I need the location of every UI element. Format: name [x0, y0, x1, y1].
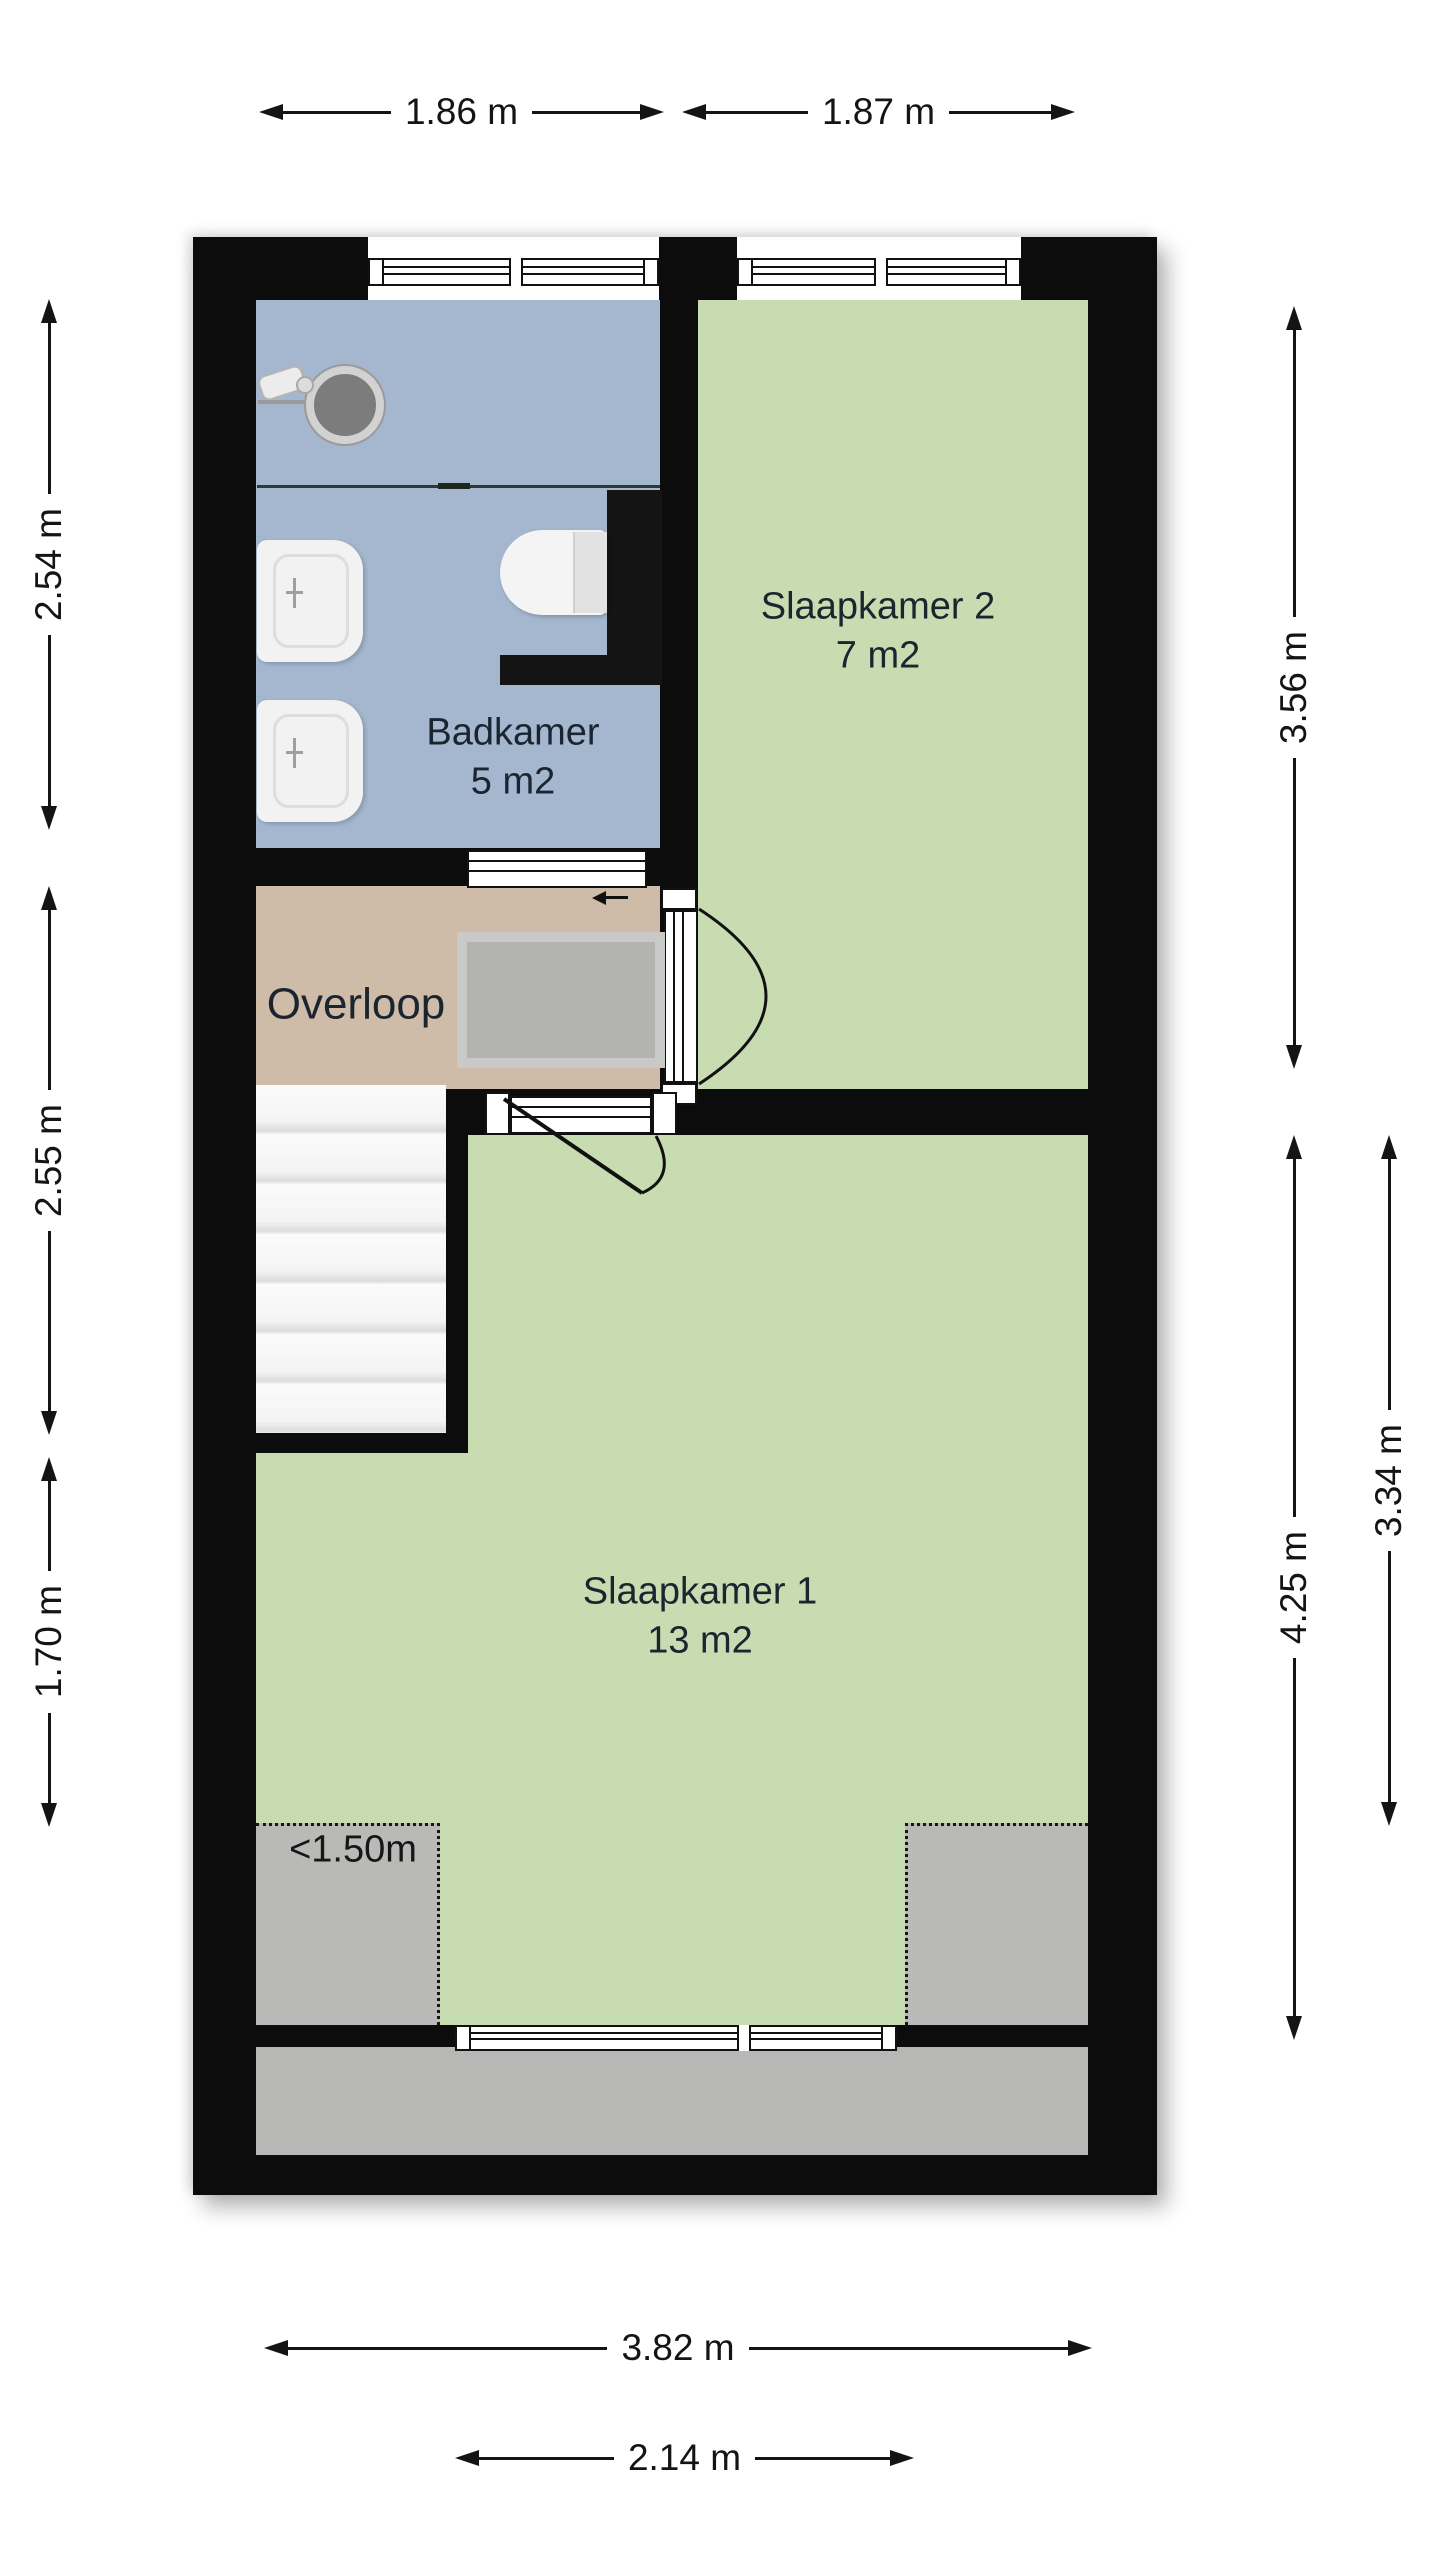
room-area: 7 m2 [761, 632, 995, 681]
room-label-badkamer: Badkamer 5 m2 [426, 709, 599, 808]
arrow-up-icon [41, 886, 57, 910]
room-name: Slaapkamer 1 [583, 1568, 817, 1617]
dimension-top-right: 1.87 m [682, 98, 1075, 126]
window-icon [455, 2025, 897, 2047]
dimension-bottom-inner: 2.14 m [455, 2444, 914, 2472]
arrow-left-icon [259, 104, 283, 120]
sink-icon [257, 540, 363, 662]
dimension-left-lower: 1.70 m [35, 1457, 63, 1827]
dimension-label: 3.34 m [1368, 1410, 1410, 1551]
window-icon [737, 237, 1021, 300]
dimension-top-left: 1.86 m [259, 98, 664, 126]
dimension-label: 1.70 m [28, 1571, 70, 1712]
arrow-down-icon [41, 1411, 57, 1435]
arrow-up-icon [41, 1457, 57, 1481]
dimension-right-upper: 3.56 m [1280, 306, 1308, 1069]
stairs [256, 1085, 446, 1433]
arrow-right-icon [1051, 104, 1075, 120]
dimension-label: 4.25 m [1273, 1517, 1315, 1658]
arrow-down-icon [1381, 1802, 1397, 1826]
floorplan: Badkamer 5 m2 Slaapkamer 2 7 m2 Overloop… [0, 0, 1440, 2560]
dimension-left-middle: 2.55 m [35, 886, 63, 1435]
room-label-overloop: Overloop [267, 975, 446, 1032]
door-slaapkamer-2-icon [664, 910, 694, 1083]
door-slaapkamer-1-icon [510, 1096, 652, 1130]
room-name: Slaapkamer 2 [761, 583, 995, 632]
dimension-label: 2.54 m [28, 494, 70, 635]
arrow-down-icon [41, 806, 57, 830]
stairwell-opening [457, 932, 665, 1068]
arrow-down-icon [1286, 2016, 1302, 2040]
low-headroom-label: <1.50m [289, 1829, 417, 1872]
room-label-slaapkamer-1: Slaapkamer 1 13 m2 [583, 1568, 817, 1667]
shower-screen-handle-icon [438, 483, 470, 489]
arrow-left-icon [455, 2450, 479, 2466]
arrow-up-icon [1381, 1135, 1397, 1159]
room-area: 5 m2 [426, 758, 599, 807]
dimension-label: 3.82 m [607, 2327, 748, 2369]
arrow-down-icon [1286, 1045, 1302, 1069]
door-jamb [652, 1092, 677, 1135]
arrow-right-icon [640, 104, 664, 120]
shower-drain-icon [306, 366, 384, 444]
dimension-left-upper: 2.54 m [35, 299, 63, 830]
door-jamb [485, 1092, 510, 1135]
room-slaapkamer-2 [698, 300, 1088, 1089]
shower-knob-icon [296, 376, 314, 394]
toilet-shelf [500, 655, 662, 685]
dimension-label: 1.86 m [391, 91, 532, 133]
arrow-left-icon [264, 2340, 288, 2356]
dimension-label: 3.56 m [1273, 617, 1315, 758]
door-badkamer-icon [467, 850, 647, 884]
room-name: Badkamer [426, 709, 599, 758]
arrow-up-icon [1286, 1135, 1302, 1159]
entry-arrow-icon [592, 891, 606, 905]
room-area: 13 m2 [583, 1617, 817, 1666]
toilet-tank-icon [573, 532, 607, 613]
dimension-label: 2.14 m [614, 2437, 755, 2479]
dimension-label: 1.87 m [808, 91, 949, 133]
sink-icon [257, 700, 363, 822]
room-name: Overloop [267, 975, 446, 1032]
low-headroom-zone-right [905, 1823, 1088, 2025]
dimension-right-outer: 3.34 m [1375, 1135, 1403, 1826]
roof-edge-strip [256, 2047, 1088, 2155]
arrow-left-icon [682, 104, 706, 120]
dimension-right-inner: 4.25 m [1280, 1135, 1308, 2040]
room-label-slaapkamer-2: Slaapkamer 2 7 m2 [761, 583, 995, 682]
arrow-up-icon [41, 299, 57, 323]
arrow-down-icon [41, 1803, 57, 1827]
dimension-bottom-outer: 3.82 m [264, 2334, 1092, 2362]
door-jamb [661, 888, 697, 910]
arrow-up-icon [1286, 306, 1302, 330]
arrow-right-icon [1068, 2340, 1092, 2356]
toilet-wall [607, 490, 662, 655]
window-icon [368, 237, 659, 300]
arrow-right-icon [890, 2450, 914, 2466]
dimension-label: 2.55 m [28, 1090, 70, 1231]
